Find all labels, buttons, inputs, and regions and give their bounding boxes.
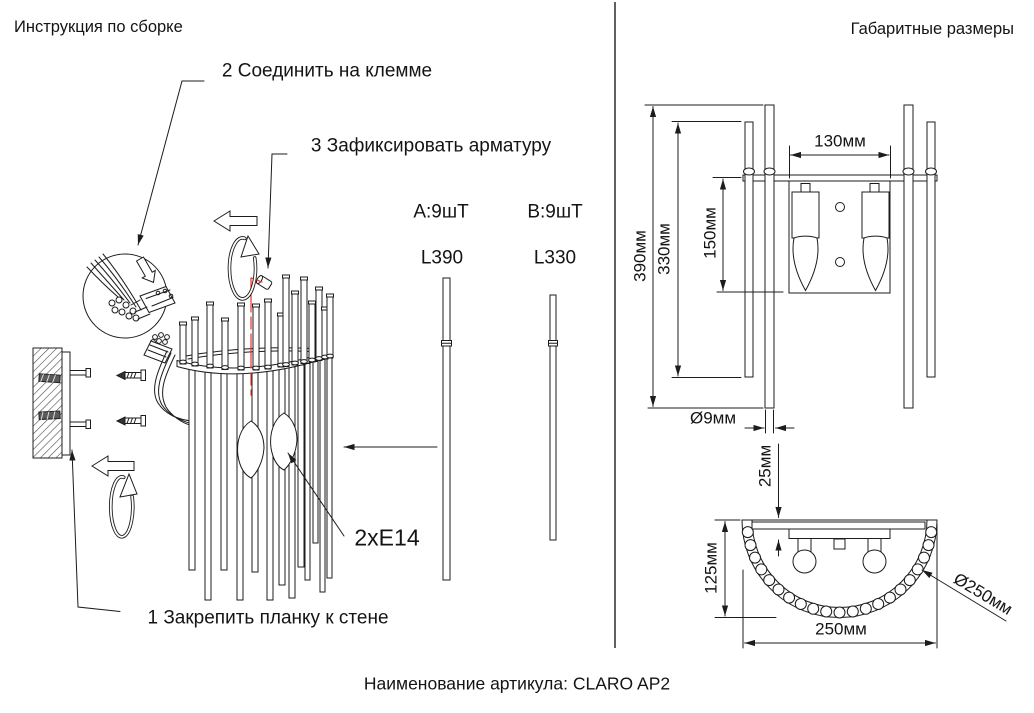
technical-drawing <box>0 0 1034 713</box>
socket <box>862 192 889 238</box>
anchor-dowel <box>39 374 60 383</box>
right-panel-title: Габаритные размеры <box>851 20 1014 39</box>
dim-width: 250мм <box>815 621 867 638</box>
label-step-1: 1 Закрепить планку к стене <box>147 609 388 628</box>
rod-part-a <box>442 278 452 580</box>
screw-icon <box>117 416 146 427</box>
pull-arrow-icon <box>214 211 257 231</box>
screw-icon <box>117 370 146 381</box>
left-panel-title: Инструкция по сборке <box>14 18 183 37</box>
lower-rods <box>189 358 332 600</box>
article-caption: Наименование артикула: CLARO AP2 <box>364 674 670 695</box>
dim-overall-height: 390мм <box>632 230 649 282</box>
socket <box>792 192 819 238</box>
lamp-holder <box>793 550 816 573</box>
label-step-2: 2 Соединить на клемме <box>222 62 432 81</box>
upper-rods <box>180 275 334 370</box>
part-a-length: L390 <box>421 249 463 268</box>
part-a-qty: A:9шТ <box>413 203 468 222</box>
label-socket-type: 2xE14 <box>354 527 419 550</box>
rod-part-b <box>549 295 558 540</box>
anchor-dowel <box>39 411 60 420</box>
wall-section <box>33 348 91 458</box>
pull-arrow-icon <box>92 456 134 476</box>
part-b-qty: B:9шТ <box>527 203 582 222</box>
rotate-arrow-icon <box>229 236 259 299</box>
instruction-sheet: Инструкция по сборке Габаритные размеры … <box>0 0 1034 713</box>
part-b-length: L330 <box>534 249 576 268</box>
dim-body-height: 150мм <box>702 207 719 259</box>
dim-rod-b-height: 330мм <box>656 223 673 275</box>
detail-circle-view <box>83 254 175 338</box>
armature-fixture <box>255 275 272 290</box>
dim-plate-width: 130мм <box>814 133 866 150</box>
dim-depth: 125мм <box>703 542 720 594</box>
rotate-arrow-icon <box>111 474 137 537</box>
label-step-3: 3 Зафиксировать арматуру <box>311 137 551 156</box>
top-view <box>742 520 937 618</box>
lamp-holder <box>863 550 886 573</box>
dim-wall-offset: 25мм <box>757 445 774 487</box>
dim-rod-diameter: Ø9мм <box>690 410 736 427</box>
lamp-body <box>177 275 334 600</box>
